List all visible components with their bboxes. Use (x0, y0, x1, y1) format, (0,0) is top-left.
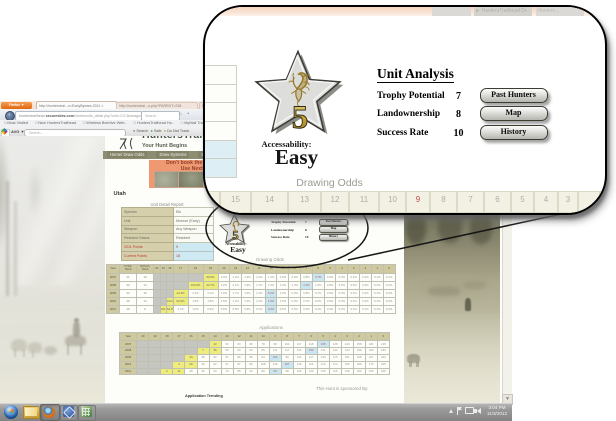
svg-text:5: 5 (291, 100, 308, 136)
